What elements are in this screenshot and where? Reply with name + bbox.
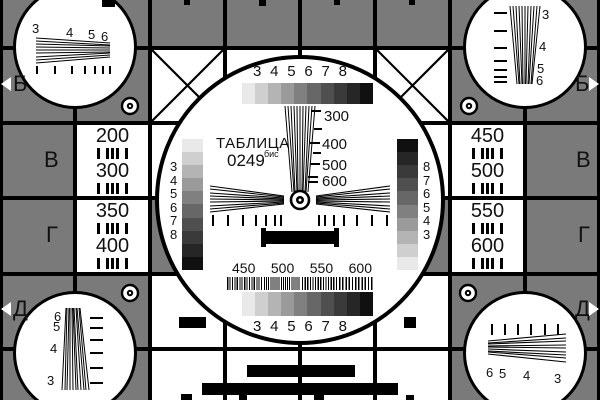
cutoff-glyph xyxy=(181,394,192,400)
registration-target-icon xyxy=(119,95,141,117)
scale-digit: 8 xyxy=(339,318,347,335)
scale-digit: 5 xyxy=(170,187,177,200)
wedge-digit: 4 xyxy=(523,369,530,382)
edge-arrow-right-icon xyxy=(589,77,599,91)
cutoff-glyph xyxy=(184,0,190,5)
grayscale-digits-bottom: 3 4 5 6 7 8 xyxy=(253,318,347,335)
burst-segment xyxy=(227,277,262,290)
scale-digit: 8 xyxy=(339,63,347,80)
cutoff-glyph xyxy=(259,0,266,6)
wedge-digit: 3 xyxy=(554,372,561,385)
wedge-tick xyxy=(310,163,320,165)
frequency-label: 550 xyxy=(471,201,504,222)
frequency-label: 600 xyxy=(471,236,504,257)
bullseye-icon xyxy=(288,188,312,212)
cutoff-glyph xyxy=(334,0,340,5)
wedge-tick xyxy=(308,181,318,183)
panel-450-500: 450 500 xyxy=(452,125,523,196)
scale-digit: 6 xyxy=(304,63,312,80)
scale-digit: 8 xyxy=(423,160,430,173)
frequency-label: 300 xyxy=(96,161,129,182)
cutoff-glyph xyxy=(409,0,415,5)
center-wedge-right xyxy=(316,184,390,215)
scale-digit: 6 xyxy=(304,318,312,335)
resolution-wedge-vertical xyxy=(494,4,542,88)
edge-arrow-right-icon xyxy=(589,302,599,316)
burst-segment xyxy=(339,277,374,290)
burst-segment xyxy=(302,277,337,290)
frequency-label: 400 xyxy=(96,236,129,257)
wedge-label: 300 xyxy=(324,109,349,124)
wedge-digit: 3 xyxy=(47,374,54,387)
scale-digit: 5 xyxy=(287,318,295,335)
calibration-bars xyxy=(472,148,503,161)
card-number-suffix: бис xyxy=(264,150,279,159)
burst-label: 500 xyxy=(271,260,294,276)
burst-labels: 450 500 550 600 xyxy=(232,260,372,276)
center-wedge-left xyxy=(210,184,284,215)
row-letter: Д xyxy=(13,298,28,320)
edge-arrow-left-icon xyxy=(1,77,11,91)
wedge-tick xyxy=(313,152,321,154)
ibeam-cap xyxy=(334,228,339,247)
edge-arrow-left-icon xyxy=(1,302,11,316)
row-letter: Б xyxy=(13,73,27,95)
scale-digit: 3 xyxy=(170,160,177,173)
cutoff-glyph xyxy=(314,394,324,400)
spacing-ticks xyxy=(210,214,400,227)
test-card-0249: 200 300 350 400 450 500 550 600 xyxy=(0,0,600,400)
scale-digit: 4 xyxy=(423,214,430,227)
registration-target-icon xyxy=(119,282,141,304)
cutoff-glyph xyxy=(102,0,115,7)
wedge-digit: 6 xyxy=(486,366,493,379)
cutoff-glyph xyxy=(239,395,247,400)
wedge-digit: 4 xyxy=(50,342,57,355)
burst-label: 550 xyxy=(310,260,333,276)
grid-line xyxy=(148,0,152,400)
panel-550-600: 550 600 xyxy=(452,200,523,272)
wedge-digit: 6 xyxy=(101,30,108,43)
frequency-burst-strip xyxy=(227,277,374,290)
frequency-label: 450 xyxy=(471,126,504,147)
scale-digit: 8 xyxy=(170,228,177,241)
sync-bar-short xyxy=(247,365,355,377)
card-number: 0249 xyxy=(227,152,265,169)
ibeam-bar xyxy=(265,231,335,244)
wedge-digit: 6 xyxy=(536,74,543,87)
row-letter: Г xyxy=(46,224,58,246)
scale-digit: 5 xyxy=(287,63,295,80)
wedge-tick xyxy=(311,110,321,112)
registration-target-icon xyxy=(457,282,479,304)
resolution-wedge-horizontal xyxy=(486,322,568,366)
row-letter: Д xyxy=(575,298,590,320)
wedge-digit: 3 xyxy=(32,22,39,35)
scale-digit: 7 xyxy=(322,318,330,335)
scale-digit: 3 xyxy=(423,228,430,241)
row-letter: В xyxy=(576,149,591,171)
scale-digit: 4 xyxy=(270,63,278,80)
wedge-digit: 5 xyxy=(53,320,60,333)
grayscale-digits-top: 3 4 5 6 7 8 xyxy=(253,63,347,80)
frequency-label: 500 xyxy=(471,161,504,182)
grayscale-strip-left xyxy=(182,139,203,270)
burst-segment xyxy=(264,277,299,290)
frequency-label: 350 xyxy=(96,201,129,222)
scale-digit: 7 xyxy=(170,214,177,227)
wedge-tick xyxy=(308,176,318,178)
wedge-tick xyxy=(310,142,320,144)
burst-label: 600 xyxy=(349,260,372,276)
sync-bar-long xyxy=(202,383,398,395)
scale-digit: 4 xyxy=(270,318,278,335)
grayscale-strip-top xyxy=(242,83,373,104)
wedge-label: 400 xyxy=(322,137,347,152)
cutoff-glyph xyxy=(406,395,414,400)
scale-digit: 3 xyxy=(253,318,261,335)
panel-350-400: 350 400 xyxy=(77,200,148,272)
row-letter: В xyxy=(44,149,59,171)
wedge-digit: 5 xyxy=(88,28,95,41)
wedge-digit: 4 xyxy=(539,40,546,53)
frequency-label: 200 xyxy=(96,126,129,147)
scale-digit: 6 xyxy=(423,187,430,200)
calibration-bars xyxy=(472,258,503,271)
calibration-bars xyxy=(97,183,128,196)
calibration-bars xyxy=(97,258,128,271)
grayscale-strip-right xyxy=(397,139,418,270)
burst-label: 450 xyxy=(232,260,255,276)
calibration-bars xyxy=(97,148,128,161)
calibration-bars xyxy=(472,183,503,196)
wedge-label: 500 xyxy=(322,158,347,173)
scale-digit: 7 xyxy=(322,63,330,80)
row-letter: Б xyxy=(575,73,589,95)
resolution-wedge-vertical xyxy=(60,306,104,392)
wedge-digit: 3 xyxy=(542,8,549,21)
panel-200-300: 200 300 xyxy=(77,125,148,196)
scale-digit: 3 xyxy=(253,63,261,80)
black-square-mark xyxy=(404,317,416,328)
black-rectangle-mark xyxy=(179,317,206,328)
wedge-digit: 5 xyxy=(499,367,506,380)
grid-line xyxy=(0,0,3,400)
wedge-digit: 4 xyxy=(66,26,73,39)
registration-target-icon xyxy=(458,95,480,117)
wedge-tick xyxy=(314,128,322,130)
grayscale-strip-bottom xyxy=(242,292,373,316)
row-letter: Г xyxy=(578,224,590,246)
